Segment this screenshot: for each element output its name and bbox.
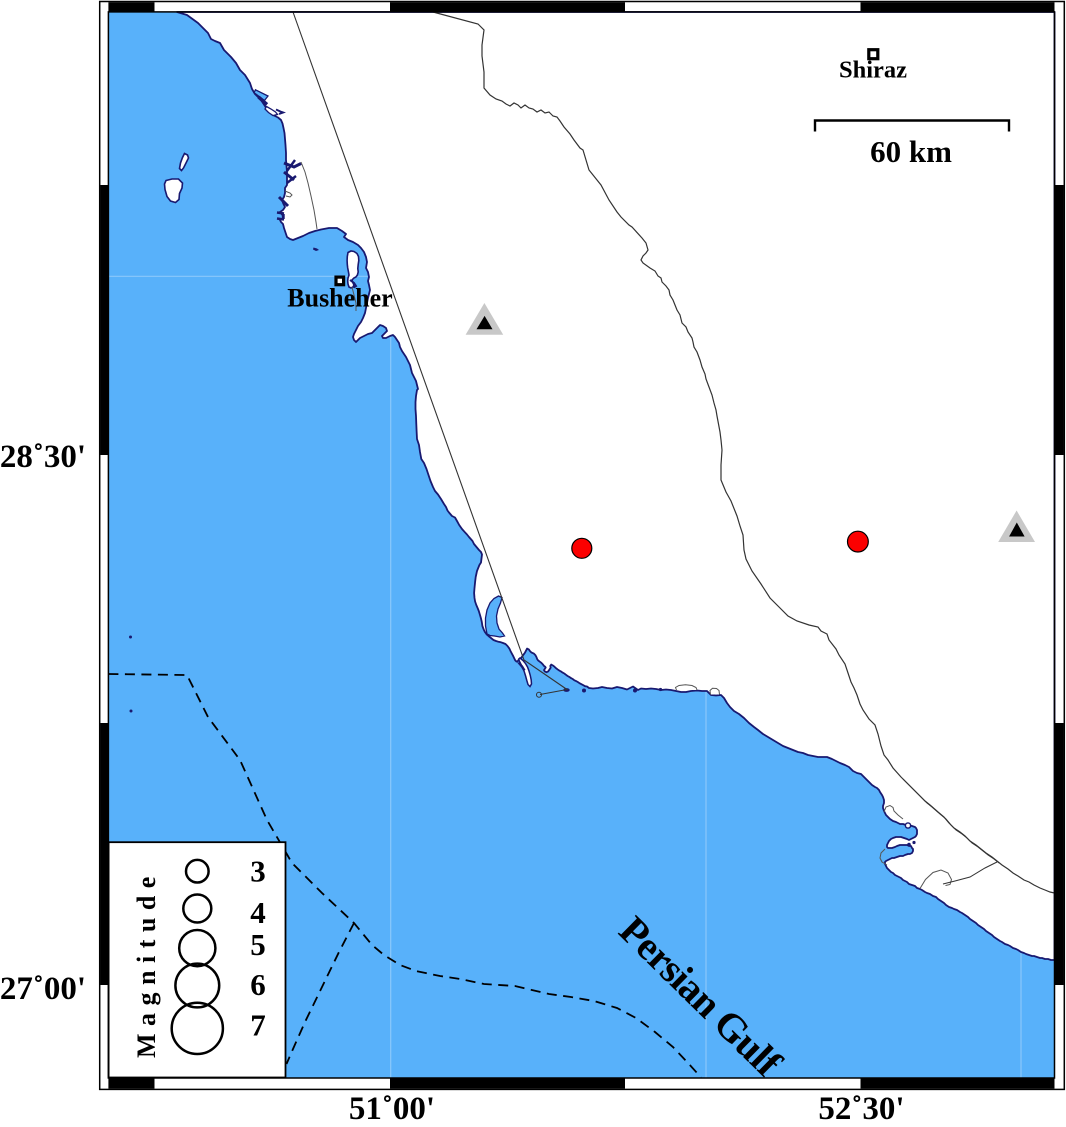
svg-text:27˚00': 27˚00': [0, 971, 86, 1007]
svg-text:52˚30': 52˚30': [818, 1091, 904, 1127]
svg-text:3: 3: [250, 854, 266, 889]
svg-text:28˚30': 28˚30': [0, 439, 86, 475]
svg-text:51˚00': 51˚00': [349, 1091, 435, 1127]
svg-text:6: 6: [250, 967, 266, 1002]
svg-text:5: 5: [250, 927, 266, 962]
svg-text:Magnitude: Magnitude: [132, 869, 161, 1058]
svg-text:60 km: 60 km: [870, 134, 952, 169]
svg-text:4: 4: [250, 895, 266, 930]
svg-text:7: 7: [250, 1008, 266, 1043]
svg-text:Busheher: Busheher: [287, 284, 392, 313]
svg-text:Shiraz: Shiraz: [839, 57, 907, 84]
